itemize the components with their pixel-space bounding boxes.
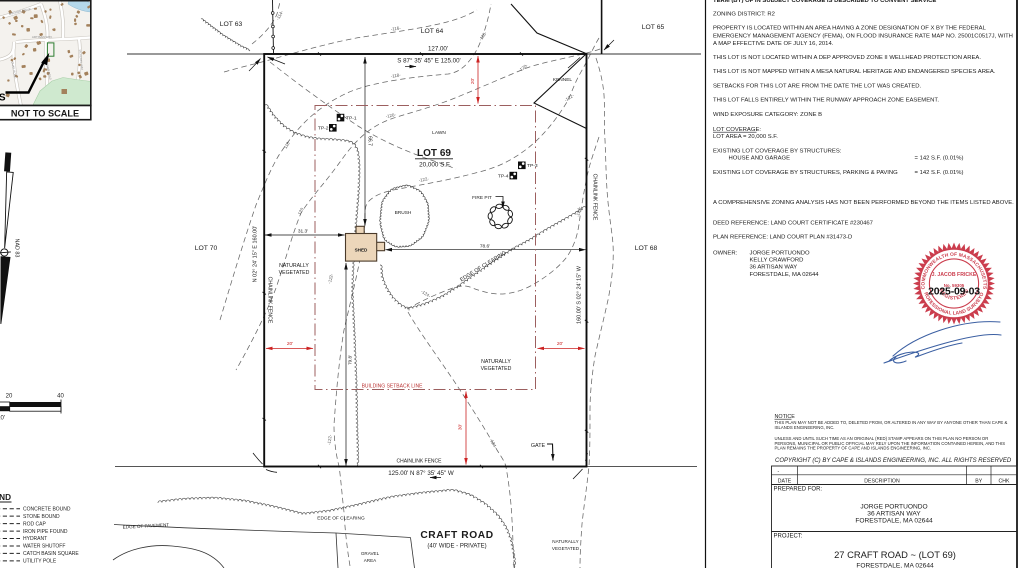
svg-text:KELLY CRAWFORD: KELLY CRAWFORD bbox=[750, 258, 804, 264]
svg-text:OWNER:: OWNER: bbox=[713, 250, 738, 256]
svg-text:LOCUS: LOCUS bbox=[0, 93, 6, 104]
svg-text:LOT 69: LOT 69 bbox=[417, 148, 451, 159]
svg-text:THIS LOT IS NOT LOCATED WITHIN: THIS LOT IS NOT LOCATED WITHIN A DEP APP… bbox=[713, 55, 981, 61]
svg-text:ROD CAP: ROD CAP bbox=[23, 521, 46, 527]
svg-text:UTILITY POLE: UTILITY POLE bbox=[23, 559, 57, 565]
svg-text:20': 20' bbox=[470, 78, 476, 84]
svg-text:CONCRETE BOUND: CONCRETE BOUND bbox=[23, 506, 71, 512]
svg-text:PREPARED FOR:: PREPARED FOR: bbox=[774, 487, 823, 493]
svg-text:KENNEL: KENNEL bbox=[553, 77, 573, 83]
svg-text:NATURALLY: NATURALLY bbox=[279, 263, 309, 269]
svg-text:NAD 83: NAD 83 bbox=[14, 239, 20, 258]
svg-text:31.3': 31.3' bbox=[298, 229, 308, 235]
svg-text:SCALE: 1" = 20': SCALE: 1" = 20' bbox=[0, 416, 5, 422]
svg-text:STONE BOUND: STONE BOUND bbox=[23, 514, 60, 520]
svg-text:30': 30' bbox=[458, 424, 464, 430]
svg-text:DEED REFERENCE: LAND COURT CER: DEED REFERENCE: LAND COURT CERTIFICATE #… bbox=[713, 220, 873, 226]
svg-text:BY: BY bbox=[975, 478, 982, 484]
svg-text:JORGE PORTUONDO: JORGE PORTUONDO bbox=[860, 504, 927, 511]
svg-text:THIS LOT FALLS ENTIRELY WITHIN: THIS LOT FALLS ENTIRELY WITHIN THE RUNWA… bbox=[713, 98, 939, 104]
svg-text:EDGE OF CLEARING: EDGE OF CLEARING bbox=[317, 516, 365, 522]
svg-text:BRUSH: BRUSH bbox=[395, 210, 412, 216]
svg-text:IRON PIPE FOUND: IRON PIPE FOUND bbox=[23, 529, 68, 535]
svg-text:FORESTDALE, MA 02644: FORESTDALE, MA 02644 bbox=[856, 563, 934, 568]
svg-text:DATE: DATE bbox=[778, 478, 792, 484]
svg-text:CHK: CHK bbox=[999, 478, 1010, 484]
svg-text:GATE: GATE bbox=[531, 443, 546, 449]
svg-text:A COMPREHENSIVE ZONING ANALYSI: A COMPREHENSIVE ZONING ANALYSIS HAS NOT … bbox=[713, 200, 1014, 206]
svg-text:160.00' S 02° 24' 15" W: 160.00' S 02° 24' 15" W bbox=[577, 265, 583, 324]
svg-text:FORESTDALE, MA 02644: FORESTDALE, MA 02644 bbox=[855, 517, 933, 524]
svg-text:66.7: 66.7 bbox=[367, 136, 373, 146]
svg-text:TP-2: TP-2 bbox=[318, 126, 329, 132]
svg-text:(40' WIDE - PRIVATE): (40' WIDE - PRIVATE) bbox=[427, 544, 486, 550]
svg-text:EXISTING LOT COVERAGE BY STRUC: EXISTING LOT COVERAGE BY STRUCTURES, PAR… bbox=[713, 170, 898, 176]
svg-text:LEGEND: LEGEND bbox=[0, 493, 11, 502]
svg-text:J. JACOB FRICKE: J. JACOB FRICKE bbox=[932, 272, 977, 278]
svg-text:VEGETATED: VEGETATED bbox=[552, 546, 580, 551]
svg-text:COPYRIGHT (C) BY CAPE & ISLAND: COPYRIGHT (C) BY CAPE & ISLANDS ENGINEER… bbox=[775, 458, 1012, 464]
svg-text:= 142 S.F. (0.01%): = 142 S.F. (0.01%) bbox=[915, 156, 964, 162]
svg-text:WATER SHUTOFF: WATER SHUTOFF bbox=[23, 544, 65, 550]
svg-text:2025-09-03: 2025-09-03 bbox=[928, 286, 980, 298]
svg-text:TP-4: TP-4 bbox=[498, 174, 509, 180]
svg-text:20': 20' bbox=[557, 341, 563, 347]
svg-text:VEGETATED: VEGETATED bbox=[481, 366, 512, 372]
svg-text:40: 40 bbox=[57, 394, 64, 400]
svg-text:CHAINLINK FENCE: CHAINLINK FENCE bbox=[266, 277, 272, 324]
svg-text:DESCRIPTION: DESCRIPTION bbox=[864, 478, 900, 484]
svg-text:FIRE PIT: FIRE PIT bbox=[472, 195, 492, 201]
svg-text:CRAFT ROAD: CRAFT ROAD bbox=[420, 530, 493, 541]
svg-text:LOT AREA = 20,000 S.F.: LOT AREA = 20,000 S.F. bbox=[713, 134, 778, 140]
svg-text:36 ARTISAN WAY: 36 ARTISAN WAY bbox=[750, 265, 798, 271]
svg-text:WIND EXPOSURE CATEGORY: ZONE B: WIND EXPOSURE CATEGORY: ZONE B bbox=[713, 112, 822, 118]
svg-text:TERM (BY) OF IN SUBJECT COVERA: TERM (BY) OF IN SUBJECT COVERAGE IS DESC… bbox=[713, 0, 936, 4]
svg-text:ISLANDS ENGINEERING, INC.: ISLANDS ENGINEERING, INC. bbox=[775, 425, 835, 430]
svg-text:SETBACKS FOR THIS LOT ARE FROM: SETBACKS FOR THIS LOT ARE FROM THE DATE … bbox=[713, 83, 922, 89]
svg-text:CATCH BASIN SQUARE: CATCH BASIN SQUARE bbox=[23, 551, 79, 557]
svg-text:27 CRAFT ROAD ~ (LOT 69): 27 CRAFT ROAD ~ (LOT 69) bbox=[834, 549, 956, 560]
svg-text:NOT TO SCALE: NOT TO SCALE bbox=[11, 109, 79, 119]
svg-text:BUILDING SETBACK LINE: BUILDING SETBACK LINE bbox=[362, 384, 424, 390]
svg-text:TP-1: TP-1 bbox=[346, 116, 357, 122]
svg-text:HOUSE AND GARAGE: HOUSE AND GARAGE bbox=[729, 156, 791, 162]
svg-text:LOT 65: LOT 65 bbox=[642, 24, 665, 31]
svg-text:PROJECT:: PROJECT: bbox=[774, 534, 803, 540]
svg-text:20,000 S.F.: 20,000 S.F. bbox=[419, 162, 451, 169]
svg-text:78.6': 78.6' bbox=[480, 244, 490, 250]
svg-text:CHAINLINK FENCE: CHAINLINK FENCE bbox=[592, 174, 598, 221]
svg-text:EXISTING LOT COVERAGE BY STRUC: EXISTING LOT COVERAGE BY STRUCTURES: bbox=[713, 148, 842, 154]
svg-text:LOT 64: LOT 64 bbox=[421, 28, 444, 35]
svg-text:TP-3: TP-3 bbox=[527, 163, 538, 169]
svg-text:127.00': 127.00' bbox=[428, 46, 448, 53]
svg-text:JORGE PORTUONDO: JORGE PORTUONDO bbox=[750, 250, 811, 256]
svg-text:ZONING DISTRICT: R2: ZONING DISTRICT: R2 bbox=[713, 11, 775, 17]
svg-text:20: 20 bbox=[6, 394, 13, 400]
svg-text:EMERGENCY MANAGEMENT AGENCY (F: EMERGENCY MANAGEMENT AGENCY (FEMA), ON F… bbox=[713, 33, 1013, 39]
svg-text:LAWN: LAWN bbox=[432, 130, 446, 136]
svg-text:125.00' N 87° 35' 45" W: 125.00' N 87° 35' 45" W bbox=[388, 470, 454, 477]
svg-text:A MAP EFFECTIVE DATE OF JULY 1: A MAP EFFECTIVE DATE OF JULY 16, 2014. bbox=[713, 41, 834, 47]
svg-text:LOT 70: LOT 70 bbox=[195, 245, 218, 252]
svg-text:PLAN REMAINS THE PROPERTY OF C: PLAN REMAINS THE PROPERTY OF CAPE AND IS… bbox=[775, 446, 932, 451]
svg-text:= 142 S.F. (0.01%): = 142 S.F. (0.01%) bbox=[915, 170, 964, 176]
svg-text:79.8': 79.8' bbox=[348, 355, 353, 365]
svg-text:S 87° 35' 45" E 125.00': S 87° 35' 45" E 125.00' bbox=[397, 58, 460, 65]
svg-text:THIS LOT IS NOT MAPPED WITHIN: THIS LOT IS NOT MAPPED WITHIN A MESA NAT… bbox=[713, 69, 996, 75]
svg-text:ARTISAN WAY: ARTISAN WAY bbox=[32, 35, 52, 39]
svg-text:FORESTDALE, MA 02644: FORESTDALE, MA 02644 bbox=[750, 272, 820, 278]
svg-text:LOT 68: LOT 68 bbox=[635, 245, 658, 252]
svg-text:HYDRANT: HYDRANT bbox=[23, 536, 47, 542]
svg-text:AREA: AREA bbox=[364, 558, 377, 563]
svg-text:CHAINLINK FENCE: CHAINLINK FENCE bbox=[396, 459, 442, 465]
svg-text:LOT 63: LOT 63 bbox=[220, 21, 243, 28]
svg-text:PROPERTY IS LOCATED WITHIN AN: PROPERTY IS LOCATED WITHIN AN AREA HAVIN… bbox=[713, 26, 987, 32]
svg-text:N 02° 24' 15" E 160.00': N 02° 24' 15" E 160.00' bbox=[253, 226, 259, 283]
svg-text:SHED: SHED bbox=[355, 247, 368, 252]
svg-text:PLAN REFERENCE: LAND COURT PL: PLAN REFERENCE: LAND COURT PLAN #31473-D bbox=[713, 235, 852, 241]
svg-text:GRAVEL: GRAVEL bbox=[361, 551, 380, 556]
svg-text:VEGETATED: VEGETATED bbox=[279, 270, 310, 276]
svg-text:NATURALLY: NATURALLY bbox=[552, 539, 578, 544]
svg-text:NATURALLY: NATURALLY bbox=[481, 359, 511, 365]
svg-text:20': 20' bbox=[287, 341, 293, 347]
